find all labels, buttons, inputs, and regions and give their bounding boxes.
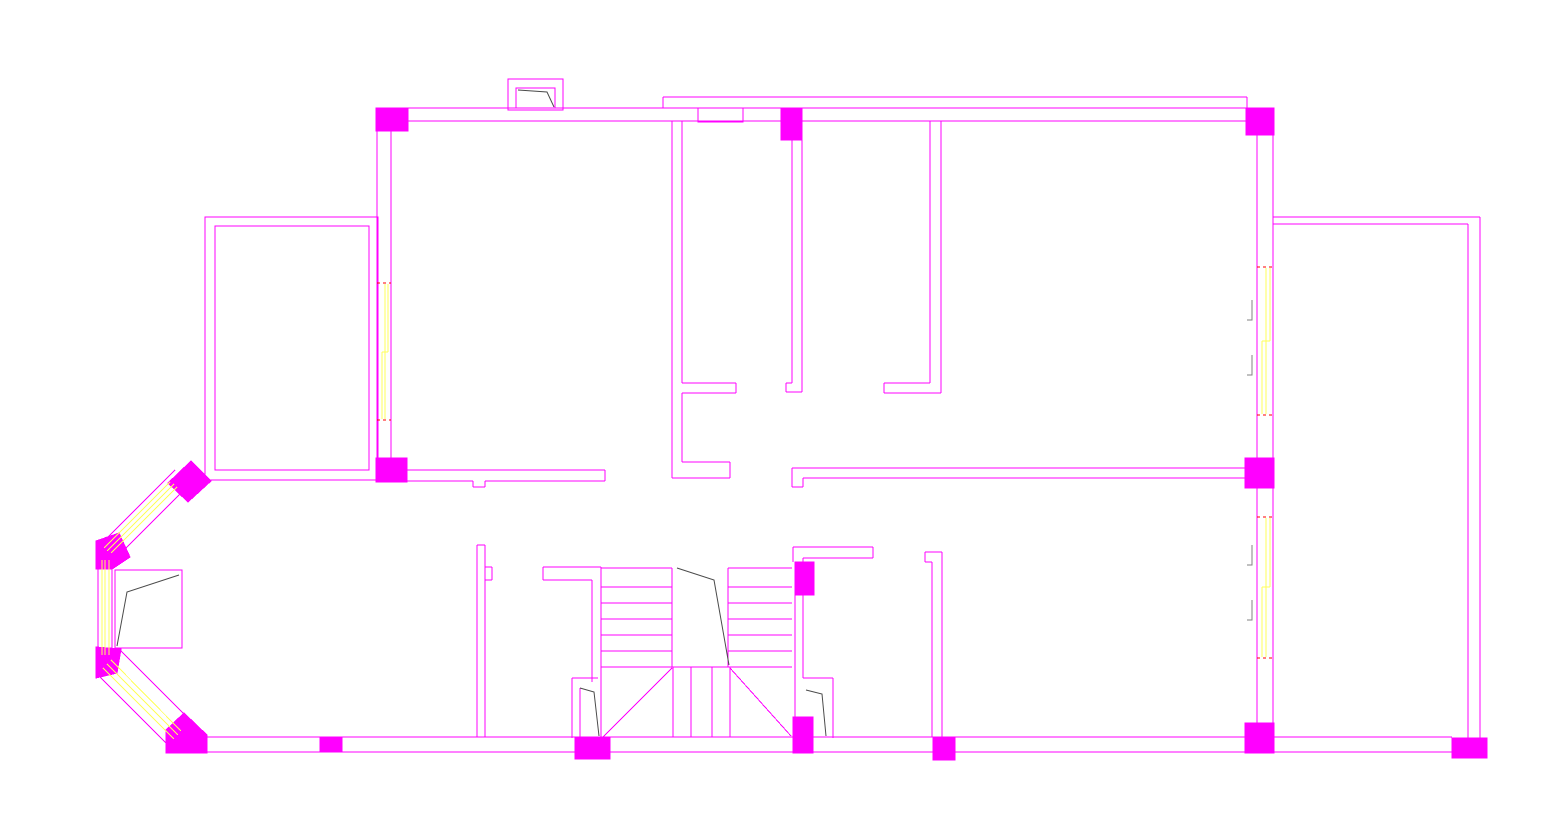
window-end-marks-layer	[377, 267, 1273, 658]
column	[376, 458, 407, 482]
floorplan-canvas	[0, 0, 1551, 824]
door-swing	[117, 575, 179, 646]
column	[1245, 458, 1274, 488]
column	[1246, 108, 1274, 135]
door-swing	[580, 688, 599, 736]
column	[575, 737, 610, 759]
window-glazing-line	[104, 482, 170, 548]
door-swing	[677, 568, 729, 665]
wall-segment	[99, 676, 168, 745]
wall-rects-layer	[115, 79, 743, 648]
door-swing	[518, 90, 554, 107]
wall-rect	[205, 217, 378, 480]
column	[320, 738, 342, 752]
column	[1452, 738, 1487, 758]
window-glazing-line	[107, 484, 174, 551]
window-label-mark	[1247, 600, 1252, 620]
column	[1245, 723, 1274, 753]
door-swings-layer	[117, 90, 826, 736]
column	[933, 737, 955, 760]
walls-layer	[98, 97, 1480, 752]
wall-rect	[115, 570, 182, 648]
window-glazing-line	[111, 660, 181, 731]
window-glazing-line	[103, 668, 174, 739]
windows-layer	[102, 268, 1270, 739]
floorplan-svg	[0, 0, 1551, 824]
column	[795, 562, 814, 595]
column	[781, 108, 802, 140]
window-label-mark	[1247, 545, 1252, 565]
bay-column	[166, 713, 207, 753]
wall-segment	[730, 668, 791, 736]
column	[793, 717, 813, 753]
wall-rect	[215, 226, 369, 470]
columns-layer	[320, 108, 1487, 760]
wall-segment	[100, 470, 175, 545]
wall-rect	[698, 108, 743, 122]
window-label-mark	[1247, 300, 1252, 320]
window-label-mark	[1247, 355, 1252, 375]
column	[376, 108, 408, 131]
wall-segment	[603, 668, 672, 737]
window-glazing-line	[107, 664, 178, 735]
window-glazing-line	[111, 487, 177, 553]
